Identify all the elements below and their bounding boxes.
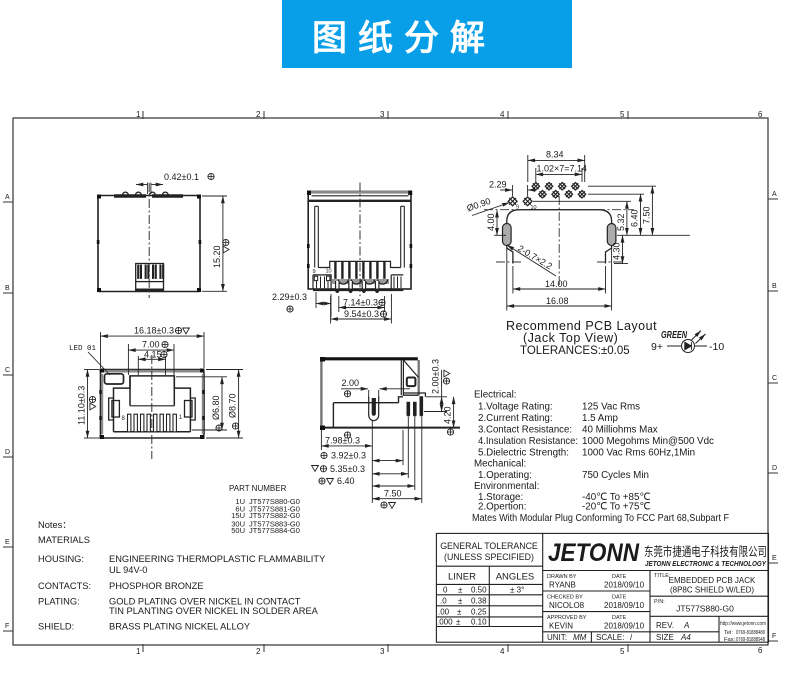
svg-text:5.Dielectric Strength:: 5.Dielectric Strength: bbox=[478, 448, 569, 459]
svg-text:3.92±0.3: 3.92±0.3 bbox=[331, 451, 366, 461]
svg-text:3.Contact Resistance:: 3.Contact Resistance: bbox=[478, 425, 572, 436]
svg-text:9+: 9+ bbox=[651, 341, 663, 353]
svg-text:JETONN: JETONN bbox=[548, 539, 640, 567]
svg-text:2.Current Rating:: 2.Current Rating: bbox=[478, 413, 553, 424]
svg-text:2-0.7×2.2: 2-0.7×2.2 bbox=[516, 243, 554, 271]
svg-text:PHOSPHOR BRONZE: PHOSPHOR BRONZE bbox=[109, 581, 204, 591]
svg-text:9: 9 bbox=[313, 269, 316, 275]
svg-text:2.Opertion:: 2.Opertion: bbox=[478, 502, 526, 513]
svg-text:HOUSING:: HOUSING: bbox=[38, 554, 84, 564]
svg-text:8.34: 8.34 bbox=[546, 150, 564, 160]
svg-text:http://www.jetonn.com: http://www.jetonn.com bbox=[720, 621, 766, 627]
svg-text:A4: A4 bbox=[680, 633, 691, 642]
svg-text:0769-81888480: 0769-81888480 bbox=[736, 630, 765, 636]
svg-text:DATE: DATE bbox=[612, 595, 627, 601]
svg-text:.0: .0 bbox=[440, 597, 447, 606]
svg-text:7.50: 7.50 bbox=[384, 489, 402, 499]
svg-text:Ø0.90: Ø0.90 bbox=[465, 196, 491, 213]
svg-text:4.Insulation Resistance:: 4.Insulation Resistance: bbox=[478, 436, 578, 447]
svg-text:ANGLES: ANGLES bbox=[496, 572, 535, 583]
svg-text:2018/09/10: 2018/09/10 bbox=[604, 601, 645, 610]
svg-text:-20℃ To +75℃: -20℃ To +75℃ bbox=[582, 502, 650, 513]
svg-text:5.32: 5.32 bbox=[616, 213, 626, 231]
svg-text:10: 10 bbox=[531, 205, 537, 211]
svg-text:MM: MM bbox=[573, 633, 587, 642]
svg-text:F: F bbox=[772, 633, 776, 640]
svg-text:APPROVED BY: APPROVED BY bbox=[547, 615, 587, 621]
svg-text:JT577S880-G0: JT577S880-G0 bbox=[676, 604, 734, 614]
svg-text:TOLERANCES:±0.05: TOLERANCES:±0.05 bbox=[520, 345, 630, 357]
svg-text:C: C bbox=[772, 375, 777, 382]
svg-text:Environmental:: Environmental: bbox=[474, 481, 539, 492]
svg-text:E: E bbox=[772, 555, 777, 562]
svg-text:1.02×7=7.14: 1.02×7=7.14 bbox=[537, 164, 588, 174]
svg-text:15.20: 15.20 bbox=[212, 245, 222, 268]
svg-text:1: 1 bbox=[136, 647, 141, 656]
svg-text:5: 5 bbox=[620, 110, 625, 119]
svg-text:东莞市捷通电子科技有限公司: 东莞市捷通电子科技有限公司 bbox=[644, 544, 767, 559]
svg-text:BRASS PLATING NICKEL ALLOY: BRASS PLATING NICKEL ALLOY bbox=[109, 622, 250, 632]
svg-text:5: 5 bbox=[620, 647, 625, 656]
svg-text:4.00: 4.00 bbox=[486, 213, 496, 231]
svg-text:GENERAL TOLERANCE: GENERAL TOLERANCE bbox=[440, 541, 538, 551]
svg-text:CONTACTS:: CONTACTS: bbox=[38, 581, 91, 591]
svg-text:RYANB: RYANB bbox=[549, 581, 576, 590]
svg-text:9: 9 bbox=[516, 205, 519, 211]
svg-text:0: 0 bbox=[443, 586, 448, 595]
svg-text:DATE: DATE bbox=[612, 574, 627, 580]
svg-text:7.00: 7.00 bbox=[142, 340, 160, 350]
svg-text:PART NUMBER: PART NUMBER bbox=[229, 484, 287, 493]
svg-text:2018/09/10: 2018/09/10 bbox=[604, 581, 645, 590]
svg-text:1: 1 bbox=[136, 110, 141, 119]
svg-text:(8P8C SHIELD W/LED): (8P8C SHIELD W/LED) bbox=[670, 586, 754, 595]
svg-text:50U: 50U bbox=[231, 526, 245, 535]
svg-text:9.54±0.3: 9.54±0.3 bbox=[344, 309, 379, 319]
svg-text:1.Voltage Rating:: 1.Voltage Rating: bbox=[478, 402, 553, 413]
svg-text:GREEN: GREEN bbox=[661, 330, 688, 341]
svg-text:1.5 Amp: 1.5 Amp bbox=[582, 413, 618, 424]
svg-text:Tel:: Tel: bbox=[724, 630, 733, 636]
svg-text:4: 4 bbox=[500, 110, 505, 119]
svg-text:Fax:: Fax: bbox=[724, 637, 736, 643]
svg-text:2: 2 bbox=[256, 647, 261, 656]
svg-text:0.25: 0.25 bbox=[471, 608, 487, 617]
svg-text:NICOLO8: NICOLO8 bbox=[549, 601, 585, 610]
svg-text:0.38: 0.38 bbox=[471, 597, 487, 606]
svg-text:Ø6.80: Ø6.80 bbox=[211, 395, 221, 420]
svg-text:UL 94V-0: UL 94V-0 bbox=[109, 565, 147, 575]
svg-text:Electrical:: Electrical: bbox=[474, 390, 516, 401]
svg-text:2.29: 2.29 bbox=[489, 180, 507, 190]
svg-text:Notes：: Notes： bbox=[38, 520, 72, 530]
svg-text:750 Cycles Min: 750 Cycles Min bbox=[582, 470, 649, 481]
svg-text:D: D bbox=[5, 449, 10, 456]
svg-text:EMBEDDED PCB JACK: EMBEDDED PCB JACK bbox=[669, 576, 756, 585]
svg-text:D: D bbox=[772, 465, 777, 472]
svg-text:7.98±0.3: 7.98±0.3 bbox=[325, 436, 360, 446]
svg-text:16.08: 16.08 bbox=[546, 296, 569, 306]
svg-text:P/N:: P/N: bbox=[654, 599, 665, 605]
svg-text:1: 1 bbox=[179, 415, 183, 421]
svg-text:REV.: REV. bbox=[656, 621, 674, 630]
svg-text:B: B bbox=[772, 283, 777, 290]
svg-text:E: E bbox=[5, 539, 10, 546]
svg-text:KEVIN: KEVIN bbox=[549, 622, 573, 631]
svg-text:-10: -10 bbox=[709, 341, 724, 353]
svg-text:±: ± bbox=[458, 597, 463, 606]
svg-text:0.10: 0.10 bbox=[471, 617, 487, 626]
svg-text:14.00: 14.00 bbox=[545, 279, 568, 289]
svg-text:6: 6 bbox=[758, 110, 763, 119]
svg-text:125 Vac Rms: 125 Vac Rms bbox=[582, 402, 640, 413]
svg-text:3: 3 bbox=[380, 647, 385, 656]
svg-text:8: 8 bbox=[122, 416, 126, 422]
svg-text:0.42±0.1: 0.42±0.1 bbox=[164, 172, 199, 182]
svg-text:1000 Megohms Min@500 Vdc: 1000 Megohms Min@500 Vdc bbox=[582, 436, 714, 447]
svg-text:1000 Vac Rms 60Hz,1Min: 1000 Vac Rms 60Hz,1Min bbox=[582, 448, 695, 459]
svg-text:2.00±0.3: 2.00±0.3 bbox=[431, 359, 441, 394]
svg-text:SIZE: SIZE bbox=[656, 633, 674, 642]
svg-text:4.15: 4.15 bbox=[144, 350, 162, 360]
svg-text:/: / bbox=[630, 633, 633, 642]
svg-text:4.20: 4.20 bbox=[443, 406, 453, 424]
svg-text:11.10±0.3: 11.10±0.3 bbox=[77, 386, 87, 425]
svg-text:ENGINEERING THERMOPLASTIC FLAM: ENGINEERING THERMOPLASTIC FLAMMABILITY bbox=[109, 554, 325, 564]
svg-text:7.14±0.3: 7.14±0.3 bbox=[343, 298, 378, 308]
svg-text:Mates With Modular Plug Confor: Mates With Modular Plug Conforming To FC… bbox=[472, 513, 729, 524]
svg-text:1.Operating:: 1.Operating: bbox=[478, 470, 532, 481]
svg-text:6: 6 bbox=[758, 646, 763, 655]
svg-text:DRAWN BY: DRAWN BY bbox=[547, 574, 577, 580]
svg-text:LED 01: LED 01 bbox=[69, 345, 97, 353]
svg-text:2: 2 bbox=[256, 110, 261, 119]
svg-text:DATE: DATE bbox=[612, 615, 627, 621]
svg-text:±: ± bbox=[458, 586, 463, 595]
svg-text:CHECKED BY: CHECKED BY bbox=[547, 595, 583, 601]
svg-text:± 3°: ± 3° bbox=[510, 586, 524, 595]
svg-text:A: A bbox=[5, 194, 10, 201]
svg-text:2.29±0.3: 2.29±0.3 bbox=[272, 292, 307, 302]
svg-text:PLATING:: PLATING: bbox=[38, 597, 80, 607]
svg-text:6.40: 6.40 bbox=[337, 476, 355, 486]
svg-text:10: 10 bbox=[326, 269, 332, 275]
svg-text:B: B bbox=[5, 285, 10, 292]
svg-text:.000: .000 bbox=[437, 617, 453, 626]
svg-text:.00: .00 bbox=[438, 608, 450, 617]
svg-text:JT577S884-G0: JT577S884-G0 bbox=[249, 526, 300, 535]
svg-text:16.18±0.3: 16.18±0.3 bbox=[134, 326, 174, 336]
svg-text:Mechanical:: Mechanical: bbox=[474, 459, 526, 470]
svg-text:MATERIALS: MATERIALS bbox=[38, 535, 90, 545]
svg-text:C: C bbox=[5, 367, 10, 374]
svg-text:2.00: 2.00 bbox=[342, 378, 360, 388]
svg-text:4: 4 bbox=[500, 647, 505, 656]
svg-text:A: A bbox=[683, 621, 689, 630]
svg-text:±: ± bbox=[457, 608, 462, 617]
svg-text:TIN PLANTING OVER NICKEL IN SO: TIN PLANTING OVER NICKEL IN SOLDER AREA bbox=[109, 606, 319, 616]
svg-text:40 Milliohms Max: 40 Milliohms Max bbox=[582, 425, 658, 436]
svg-text:5.35±0.3: 5.35±0.3 bbox=[330, 464, 365, 474]
svg-text:SHIELD:: SHIELD: bbox=[38, 622, 74, 632]
svg-text:(Jack Top View): (Jack Top View) bbox=[523, 331, 618, 345]
svg-text:SCALE:: SCALE: bbox=[596, 633, 624, 642]
svg-text:0.50: 0.50 bbox=[471, 586, 487, 595]
svg-text:2018/09/10: 2018/09/10 bbox=[604, 622, 645, 631]
svg-text:±: ± bbox=[456, 617, 461, 626]
svg-text:4.30: 4.30 bbox=[612, 242, 622, 260]
svg-text:JETONN ELECTRONIC & TECHNOLOGY: JETONN ELECTRONIC & TECHNOLOGY bbox=[645, 561, 767, 568]
svg-text:7.50: 7.50 bbox=[642, 206, 652, 224]
svg-text:6.40: 6.40 bbox=[630, 209, 640, 227]
svg-text:0769-81888948: 0769-81888948 bbox=[736, 637, 765, 643]
svg-text:Ø8.70: Ø8.70 bbox=[228, 393, 238, 418]
svg-text:F: F bbox=[5, 623, 9, 630]
svg-text:GOLD PLATING OVER NICKEL IN CO: GOLD PLATING OVER NICKEL IN CONTACT bbox=[109, 597, 301, 607]
svg-text:3: 3 bbox=[380, 110, 385, 119]
svg-text:(UNLESS SPECIFIED): (UNLESS SPECIFIED) bbox=[444, 552, 534, 562]
svg-text:A: A bbox=[772, 191, 777, 198]
svg-text:LINER: LINER bbox=[448, 572, 476, 583]
svg-text:UNIT:: UNIT: bbox=[547, 633, 567, 642]
